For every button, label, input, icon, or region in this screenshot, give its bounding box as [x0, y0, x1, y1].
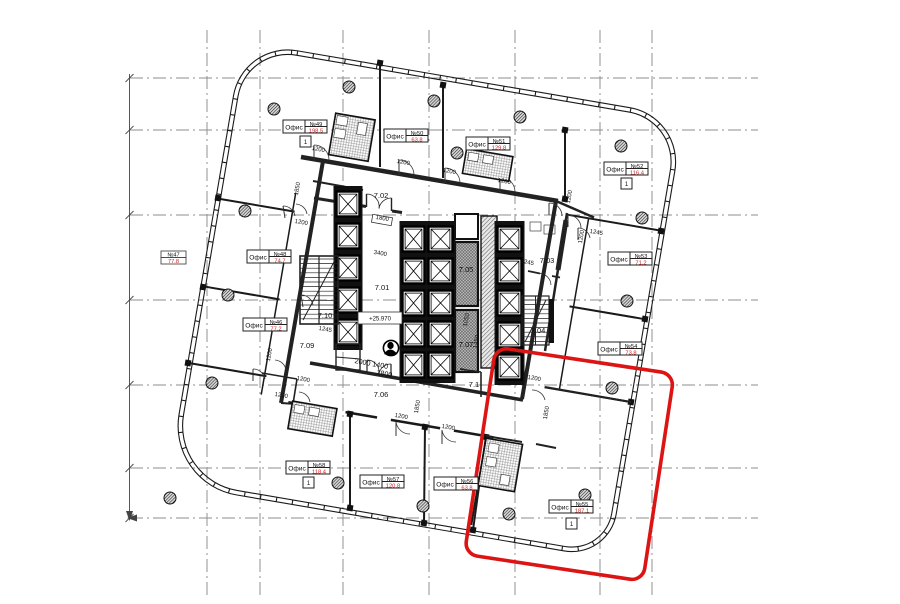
svg-text:7.06: 7.06 [374, 390, 389, 399]
svg-text:Офис: Офис [436, 482, 454, 489]
svg-text:7.07: 7.07 [459, 340, 474, 349]
svg-text:1200: 1200 [497, 178, 512, 186]
svg-text:№51: №51 [493, 139, 506, 145]
svg-text:№46: №46 [270, 320, 283, 326]
svg-text:Офис: Офис [386, 134, 404, 141]
svg-text:120.8: 120.8 [386, 483, 401, 489]
svg-text:№55: №55 [576, 502, 589, 508]
svg-text:Офис: Офис [362, 480, 380, 487]
svg-text:1200: 1200 [296, 376, 311, 384]
svg-text:63.8: 63.8 [411, 137, 422, 143]
svg-text:№48: №48 [274, 252, 287, 258]
svg-text:№52: №52 [631, 164, 644, 170]
svg-text:1200: 1200 [274, 392, 289, 400]
svg-text:198.5: 198.5 [309, 128, 324, 134]
svg-text:1200: 1200 [294, 219, 309, 227]
svg-text:1800: 1800 [376, 368, 393, 380]
svg-text:7.09: 7.09 [300, 341, 315, 350]
svg-text:3400: 3400 [373, 250, 388, 258]
svg-text:1200: 1200 [396, 159, 411, 167]
svg-text:№54: №54 [625, 344, 638, 350]
svg-text:129.8: 129.8 [492, 145, 507, 151]
svg-text:Офис: Офис [249, 255, 267, 262]
svg-text:116.4: 116.4 [630, 170, 645, 176]
svg-text:7.05: 7.05 [459, 265, 474, 274]
svg-text:Офис: Офис [606, 167, 624, 174]
svg-text:71.2: 71.2 [635, 260, 646, 266]
svg-text:№49: №49 [310, 122, 323, 128]
svg-text:7.03: 7.03 [540, 256, 555, 265]
svg-text:1200: 1200 [311, 146, 326, 154]
svg-text:№56: №56 [461, 479, 474, 485]
svg-text:Офис: Офис [288, 466, 306, 473]
svg-text:№47: №47 [167, 253, 179, 259]
svg-text:77.8: 77.8 [168, 259, 179, 265]
svg-text:7.04: 7.04 [531, 326, 546, 335]
svg-text:Офис: Офис [468, 142, 486, 149]
svg-text:1850: 1850 [414, 399, 422, 414]
svg-text:1245: 1245 [589, 229, 604, 237]
svg-text:7.02: 7.02 [374, 191, 389, 200]
svg-text:№57: №57 [387, 477, 400, 483]
svg-text:1200: 1200 [442, 168, 457, 176]
svg-text:Офис: Офис [285, 125, 303, 132]
svg-text:№50: №50 [411, 131, 424, 137]
svg-text:7.10: 7.10 [318, 311, 333, 320]
svg-text:77.2: 77.2 [270, 326, 281, 332]
svg-text:73.8: 73.8 [625, 350, 636, 356]
svg-text:1850: 1850 [543, 405, 551, 420]
svg-text:1450: 1450 [473, 334, 481, 349]
svg-text:74.7: 74.7 [274, 258, 285, 264]
svg-text:Офис: Офис [245, 323, 263, 330]
svg-text:Офис: Офис [600, 347, 618, 354]
svg-text:1200: 1200 [566, 189, 574, 204]
svg-text:63.8: 63.8 [461, 485, 472, 491]
svg-text:+25.970: +25.970 [369, 317, 392, 323]
svg-text:Офис: Офис [551, 505, 569, 512]
svg-text:118.4: 118.4 [312, 469, 327, 475]
svg-text:187.1: 187.1 [575, 508, 590, 514]
svg-text:1200: 1200 [527, 375, 542, 383]
svg-text:№53: №53 [635, 254, 648, 260]
svg-text:7.1: 7.1 [469, 380, 479, 389]
svg-text:7.01: 7.01 [375, 283, 390, 292]
svg-text:1200: 1200 [266, 347, 274, 362]
svg-text:1850: 1850 [294, 181, 302, 196]
svg-text:№58: №58 [313, 463, 326, 469]
svg-text:1200: 1200 [441, 424, 456, 432]
svg-text:Офис: Офис [610, 257, 628, 264]
svg-text:1245: 1245 [318, 326, 333, 334]
